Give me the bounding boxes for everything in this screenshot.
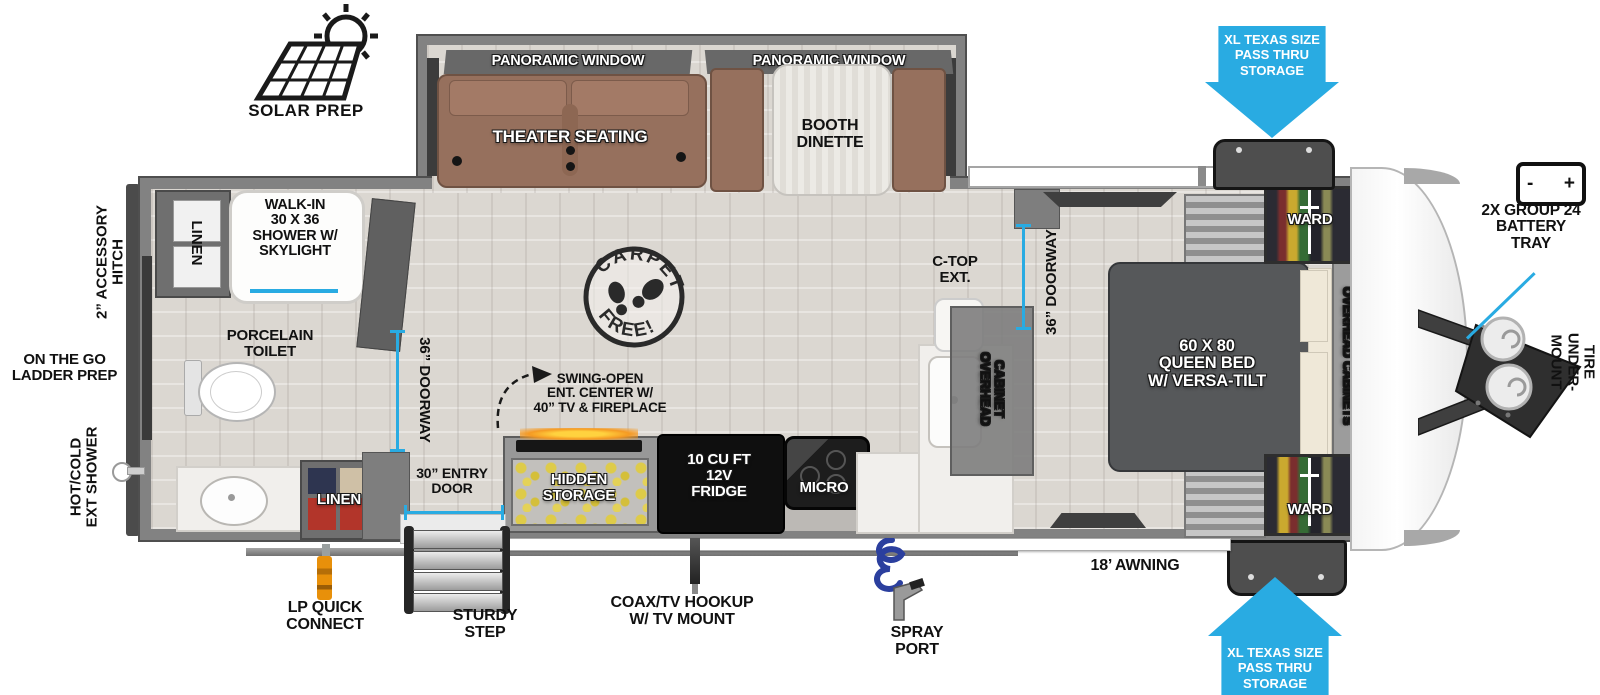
lp-quick-connect-fitting — [317, 556, 332, 600]
cap-trim — [1404, 530, 1460, 546]
screw — [1318, 574, 1324, 580]
solar-prep-icon — [248, 2, 388, 104]
panoramic-window-left-label: PANORAMIC WINDOW — [448, 54, 688, 69]
pass-thru-arrow-top: XL TEXAS SIZE PASS THRU STORAGE — [1205, 26, 1339, 138]
theater-cushion-right — [571, 80, 689, 116]
theater-cupholder — [566, 162, 575, 171]
vanity-sink — [200, 476, 268, 526]
screw — [1236, 147, 1242, 153]
wardrobe-rod-tick — [1300, 474, 1319, 477]
step — [413, 551, 503, 570]
bedroom-doorway-cap — [1016, 224, 1031, 227]
booth-bench-left — [710, 68, 764, 192]
bath-doorway-label: 36” DOORWAY — [416, 337, 432, 443]
awning-label: 18’ AWNING — [1060, 558, 1210, 575]
floorplan-diagram: PANORAMIC WINDOW PANORAMIC WINDOW THEATE… — [0, 0, 1600, 695]
accessory-hitch-label: 2” ACCESSORY HITCH — [94, 205, 126, 319]
micro-label: MICRO — [782, 480, 866, 496]
hidden-storage-label: HIDDEN STORAGE — [513, 472, 645, 504]
wardrobe-rod-tick — [1300, 206, 1319, 209]
ward-top-label: WARD — [1264, 212, 1356, 228]
theater-cushion-left — [449, 80, 567, 116]
entry-door-cap — [501, 505, 504, 520]
battery-minus: - — [1527, 173, 1533, 195]
burner — [826, 450, 846, 470]
lp-quick-connect-label: LP QUICK CONNECT — [245, 600, 405, 634]
toilet-seat — [210, 371, 262, 413]
fridge-label: 10 CU FT 12V FRIDGE — [659, 452, 779, 500]
bedroom-step-top — [1184, 194, 1266, 264]
window-shade — [1050, 513, 1146, 528]
ward-bottom-label: WARD — [1264, 502, 1356, 518]
coax-label: COAX/TV HOOKUP W/ TV MOUNT — [592, 595, 772, 629]
toilet-label: PORCELAIN TOILET — [205, 328, 335, 360]
queen-bed-label: 60 X 80 QUEEN BED W/ VERSA-TILT — [1110, 338, 1304, 390]
bath-wall-window — [142, 256, 152, 440]
overhead-cabinet-box — [1300, 352, 1328, 466]
spare-tire-line2: SPARE TIRE — [1580, 333, 1600, 391]
bedroom-doorway-label: 36” DOORWAY — [1044, 229, 1060, 335]
booth-bench-right — [892, 68, 946, 192]
entry-door-line — [404, 511, 504, 514]
booth-dinette-label: BOOTH DINETTE — [778, 118, 882, 152]
shower-label: WALK-IN 30 X 36 SHOWER W/ SKYLIGHT — [233, 198, 357, 259]
skylight-line — [250, 289, 338, 293]
screw — [1306, 147, 1312, 153]
spray-port-hose — [862, 538, 928, 630]
entry-door-cap — [404, 505, 407, 520]
bedroom-doorway-cap — [1016, 327, 1031, 330]
ext-shower-label: HOT/COLD EXT SHOWER — [68, 427, 100, 528]
battery-plus: + — [1564, 173, 1575, 195]
theater-cupholder — [566, 146, 575, 155]
theater-cupholder — [452, 156, 462, 166]
spray-port-label: SPRAY PORT — [872, 625, 962, 659]
kitchen-overhead-cabinet-label: OVERHEAD CABINET — [978, 352, 1006, 426]
step — [413, 572, 503, 591]
bedroom-doorway-line — [1022, 226, 1025, 328]
entry-steps — [404, 526, 510, 614]
bath-doorway-cap — [390, 330, 405, 333]
vanity-faucet — [228, 494, 235, 501]
coax-cable — [690, 538, 700, 584]
cap-trim — [1404, 168, 1460, 184]
swing-open-label: SWING-OPEN ENT. CENTER W/ 40” TV & FIREP… — [518, 372, 682, 415]
cabinet-word: CABINET — [992, 352, 1006, 426]
ext-shower-stem — [127, 467, 145, 475]
bath-doorway-line — [396, 332, 399, 450]
sturdy-step-label: STURDY STEP — [425, 608, 545, 642]
ladder-prep-label: ON THE GO LADDER PREP — [0, 352, 137, 384]
pass-thru-storage-top — [1213, 139, 1335, 190]
screw — [1248, 574, 1254, 580]
overhead-cabinet-box — [1300, 270, 1328, 342]
spare-tire-label: UNDER-MOUNT SPARE TIRE — [1548, 333, 1600, 391]
coax-tip — [692, 584, 698, 594]
theater-cupholder — [676, 152, 686, 162]
window-shade — [1043, 192, 1177, 207]
battery-tray-label: 2X GROUP 24 BATTERY TRAY — [1460, 203, 1600, 252]
window-divider — [1198, 166, 1206, 186]
solar-prep-label: SOLAR PREP — [226, 102, 386, 120]
entry-door-label: 30” ENTRY DOOR — [396, 466, 508, 496]
battery-icon: - + — [1516, 162, 1586, 206]
bedroom-window — [968, 166, 1216, 188]
wardrobe-bottom — [1264, 454, 1362, 536]
overhead-word: OVERHEAD — [978, 352, 992, 426]
bath-doorway-cap — [390, 449, 405, 452]
spare-tire-line1: UNDER-MOUNT — [1548, 333, 1580, 391]
tv-bar — [516, 440, 642, 452]
step — [413, 530, 503, 549]
ctop-ext-label: C-TOP EXT. — [900, 254, 1010, 286]
theater-seating-label: THEATER SEATING — [455, 128, 685, 146]
linen-top-label: LINEN — [188, 221, 204, 266]
